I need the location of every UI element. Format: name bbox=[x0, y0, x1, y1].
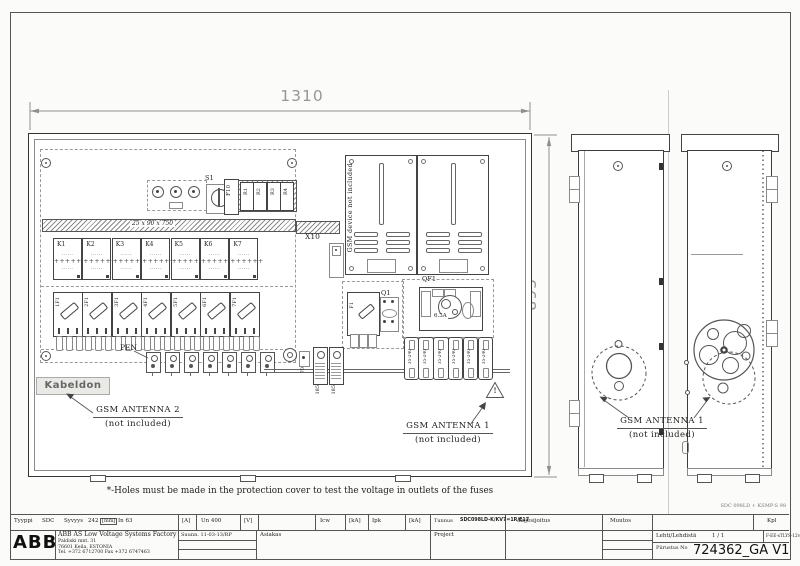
s1-label: S1 bbox=[205, 175, 214, 182]
terminal-block: 35-240 bbox=[463, 337, 479, 380]
latch-mark bbox=[659, 163, 663, 170]
unit-ka1: [kA] bbox=[349, 519, 361, 525]
terminal-block: 35-240 bbox=[418, 337, 434, 380]
hinge-pin-line bbox=[762, 151, 764, 467]
front-foot bbox=[240, 475, 256, 482]
pen-terminal bbox=[241, 352, 256, 373]
fuse-icon bbox=[207, 302, 227, 320]
x10-label: X10 bbox=[305, 233, 320, 241]
pen-terminal bbox=[165, 352, 180, 373]
terminal-block: 35-240 bbox=[433, 337, 449, 380]
lug-label: 185 bbox=[316, 385, 321, 395]
field-ipk: Ipk bbox=[372, 519, 381, 525]
fold-mark bbox=[668, 90, 669, 514]
field-un: Un 400 bbox=[201, 519, 221, 525]
unit-a: [A] bbox=[182, 519, 190, 525]
field-in: In 63 bbox=[118, 519, 132, 525]
f10-label: F10 bbox=[227, 185, 233, 196]
fuse-switch: 1F1 bbox=[53, 292, 83, 337]
cable-gland bbox=[682, 441, 689, 454]
hinge-icon bbox=[569, 400, 580, 414]
contactor-box: K1······++++++······ bbox=[53, 238, 82, 280]
value-lehti: 1 / 1 bbox=[712, 534, 724, 540]
fuse-switch: 4F1 bbox=[141, 292, 171, 337]
cable-terminals bbox=[144, 336, 171, 351]
side-foot bbox=[745, 474, 760, 483]
meter-plate bbox=[417, 155, 489, 275]
callout-gsm-antenna-2: GSM ANTENNA 2 (not included) bbox=[86, 405, 190, 429]
callout-gsm-antenna-1-front: GSM ANTENNA 1 (not included) bbox=[396, 421, 500, 445]
field-piirustus: Piirustus No bbox=[656, 546, 688, 551]
drawing-note: *-Holes must be made in the protection c… bbox=[70, 487, 530, 496]
field-asiakas: Asiakas bbox=[260, 533, 281, 539]
hinge-icon bbox=[766, 320, 778, 334]
kabeldon-logo: Kabeldon bbox=[36, 377, 110, 395]
busbar-label: 25 x 90 x 750 bbox=[130, 221, 175, 227]
fuse-switch: 2F1 bbox=[82, 292, 112, 337]
contactor-box: K3······++++++······ bbox=[112, 238, 141, 280]
front-foot bbox=[90, 475, 106, 482]
latch-mark bbox=[659, 278, 663, 285]
fuse-icon bbox=[148, 302, 168, 320]
terminal-block: 35-240 bbox=[404, 337, 420, 380]
pen-terminal bbox=[203, 352, 218, 373]
field-muutos: Muutos bbox=[610, 519, 631, 525]
abb-logo: ABB bbox=[13, 534, 57, 552]
compartment-divider bbox=[41, 286, 293, 287]
pen-terminal bbox=[184, 352, 199, 373]
front-foot bbox=[395, 475, 411, 482]
fuse-switch: 7F1 bbox=[230, 292, 260, 337]
contactor-box: K4······++++++······ bbox=[141, 238, 170, 280]
q1-fuse-label: F1 bbox=[350, 302, 355, 309]
company-name: ABB AS Low Voltage Systems Factory bbox=[58, 532, 176, 538]
fuse-switch: 5F1 bbox=[171, 292, 201, 337]
cable-terminals bbox=[174, 336, 201, 351]
dim-width-label: 1310 bbox=[272, 89, 332, 105]
relay-cell: R1 bbox=[240, 182, 254, 211]
cable-terminals bbox=[203, 336, 230, 351]
contactor-box: K7······++++++······ bbox=[229, 238, 258, 280]
q1-label: Q1 bbox=[381, 290, 390, 297]
hinge-icon bbox=[766, 176, 778, 190]
screw-icon bbox=[722, 161, 732, 171]
value-syvyys: 242 bbox=[88, 519, 99, 525]
unit-ka2: [kA] bbox=[409, 519, 421, 525]
fuse-switch: 6F1 bbox=[200, 292, 230, 337]
engineering-drawing: SDC 098LD + KSMP-S 98 1310 895 S1 F10 R1… bbox=[0, 0, 800, 566]
field-syvyys: Syvyys bbox=[64, 519, 83, 525]
callout-gsm-antenna-1-side: GSM ANTENNA 1 (not included) bbox=[610, 416, 714, 440]
hinge-icon bbox=[569, 189, 580, 203]
bar-70-label: 70 bbox=[301, 367, 306, 373]
side-foot bbox=[637, 474, 652, 483]
pen-terminal bbox=[222, 352, 237, 373]
relay-cell: R4 bbox=[280, 182, 294, 211]
terminal-block: 35-240 bbox=[448, 337, 464, 380]
field-icw: Icw bbox=[320, 519, 330, 525]
field-lehti: Lehti/Lehdistä bbox=[656, 534, 696, 540]
unit-v: [V] bbox=[244, 519, 252, 525]
cable-lug bbox=[313, 347, 328, 385]
cable-terminals bbox=[85, 336, 112, 351]
relay-cell: R3 bbox=[267, 182, 281, 211]
field-tunnus: Tunnus bbox=[434, 519, 453, 524]
drawing-number: 724362_GA V1 bbox=[693, 544, 789, 557]
field-kpl: Kpl bbox=[767, 519, 776, 525]
title-block: Tyyppi SDC Syvyys 242 [mm] In 63 [A] Un … bbox=[10, 514, 789, 559]
company-addr3: Tel. +372 6712700 Fax +372 6747463 bbox=[58, 551, 150, 556]
bar-70 bbox=[299, 351, 310, 367]
field-suunn: Suunn. 11-03-13/RP bbox=[181, 533, 232, 538]
pen-label: PEN bbox=[120, 344, 137, 352]
screw-icon bbox=[613, 161, 623, 171]
warning-icon: ! bbox=[491, 387, 499, 395]
cable-terminals bbox=[233, 336, 260, 351]
hinge-icon bbox=[766, 333, 778, 347]
value-tyyppi: SDC bbox=[42, 519, 54, 525]
fuse-icon bbox=[59, 302, 79, 320]
company-addr1: Paldiski mnt. 31 bbox=[58, 540, 96, 545]
cable-terminals bbox=[56, 336, 83, 351]
field-kojesijoitus: Kojesijoitus bbox=[518, 519, 550, 525]
hinge-icon bbox=[569, 176, 580, 190]
latch-mark bbox=[659, 343, 663, 350]
side-foot bbox=[589, 474, 604, 483]
doc-ref: SDC 098LD + KSMP-S 98 bbox=[640, 504, 786, 509]
fuse-icon bbox=[236, 302, 256, 320]
contactor-box: K2······++++++······ bbox=[82, 238, 111, 280]
contactor-box: K5······++++++······ bbox=[171, 238, 200, 280]
fuse-switch: 3F1 bbox=[112, 292, 142, 337]
fuse-icon bbox=[118, 302, 138, 320]
contactor-box: K6······++++++······ bbox=[200, 238, 229, 280]
relay-cell: R2 bbox=[253, 182, 267, 211]
fuse-icon bbox=[89, 302, 109, 320]
terminal-block: 35-240 bbox=[478, 337, 494, 380]
lug-label: 185 bbox=[332, 385, 337, 395]
field-project: Project bbox=[434, 533, 454, 539]
side-foot bbox=[697, 474, 712, 483]
unit-mm: [mm] bbox=[100, 518, 117, 525]
cable-lug bbox=[329, 347, 344, 385]
form-ref: F-EE-sTLYS-12v01 bbox=[766, 534, 800, 538]
fuse-icon bbox=[177, 302, 197, 320]
gsm-device-note: GSM device not included bbox=[348, 163, 354, 252]
pen-terminal bbox=[146, 352, 161, 373]
hinge-icon bbox=[569, 413, 580, 427]
qf1-rating: 6.3A bbox=[433, 314, 448, 320]
hinge-icon bbox=[766, 189, 778, 203]
field-tyyppi: Tyyppi bbox=[14, 519, 33, 525]
meter-plate: GSM device not included bbox=[345, 155, 417, 275]
